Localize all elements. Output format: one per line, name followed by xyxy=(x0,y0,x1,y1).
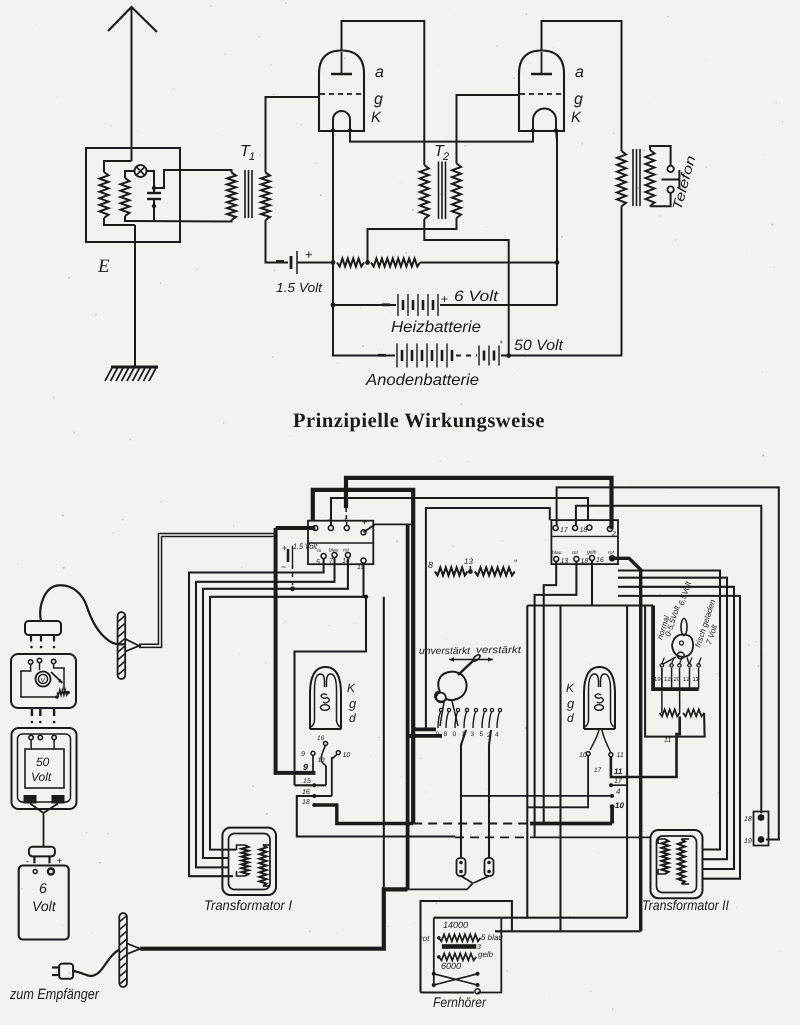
svg-text:19: 19 xyxy=(654,676,661,683)
svg-text:Transformator I: Transformator I xyxy=(204,897,292,913)
svg-text:gelb: gelb xyxy=(587,550,597,556)
svg-text:+: + xyxy=(441,292,448,306)
svg-text:16: 16 xyxy=(596,557,604,564)
svg-text:g: g xyxy=(349,696,357,711)
svg-text:4: 4 xyxy=(495,732,499,739)
svg-text:Fernhörer: Fernhörer xyxy=(433,994,487,1010)
svg-text:18: 18 xyxy=(744,816,752,823)
svg-text:K: K xyxy=(566,681,575,695)
svg-text:15: 15 xyxy=(303,778,311,785)
svg-text:': ' xyxy=(500,338,502,352)
svg-text:rot: rot xyxy=(572,550,578,556)
svg-text:8: 8 xyxy=(444,731,448,738)
svg-text:13: 13 xyxy=(464,557,473,566)
svg-text:50: 50 xyxy=(36,755,50,769)
svg-text:Anodenbatterie: Anodenbatterie xyxy=(365,372,479,389)
svg-text:E: E xyxy=(97,256,110,277)
svg-text:9: 9 xyxy=(301,751,305,758)
svg-text:d: d xyxy=(567,711,574,725)
svg-text:1.5 Volt: 1.5 Volt xyxy=(276,280,323,295)
svg-text:K: K xyxy=(347,681,356,695)
svg-text:11: 11 xyxy=(614,767,623,776)
svg-text:ro: ro xyxy=(317,548,322,554)
svg-text:10: 10 xyxy=(343,752,351,759)
svg-text:d: d xyxy=(349,711,356,725)
svg-text:14000: 14000 xyxy=(443,920,468,930)
svg-text:5: 5 xyxy=(316,559,320,566)
svg-text:K: K xyxy=(371,109,382,126)
svg-text:1.5 Volt: 1.5 Volt xyxy=(293,542,318,551)
svg-text:g: g xyxy=(567,696,575,711)
svg-text:Prinzipielle Wirkungsweise: Prinzipielle Wirkungsweise xyxy=(293,410,545,432)
svg-text:8: 8 xyxy=(428,560,433,570)
svg-text:rot: rot xyxy=(420,934,430,943)
svg-text:10: 10 xyxy=(579,752,587,759)
svg-text:gelb: gelb xyxy=(478,950,494,959)
svg-text:11: 11 xyxy=(664,737,671,744)
svg-text:10: 10 xyxy=(615,801,624,810)
svg-text:11: 11 xyxy=(617,752,624,759)
svg-text:2: 2 xyxy=(442,151,449,163)
svg-text:13: 13 xyxy=(561,558,569,565)
svg-text:+: + xyxy=(282,543,287,553)
svg-text:18: 18 xyxy=(581,558,589,565)
svg-text:'': '' xyxy=(514,558,518,568)
svg-text:blau: blau xyxy=(329,548,339,554)
svg-text:50 Volt: 50 Volt xyxy=(514,337,564,354)
svg-text:V: V xyxy=(41,678,46,685)
svg-text:19: 19 xyxy=(744,838,752,845)
svg-text:Volt: Volt xyxy=(32,898,57,914)
svg-text:18: 18 xyxy=(580,527,588,534)
svg-text:verstärkt: verstärkt xyxy=(476,645,522,656)
svg-text:13: 13 xyxy=(318,757,326,764)
svg-text:18: 18 xyxy=(302,799,310,806)
svg-text:+: + xyxy=(362,517,367,527)
svg-text:17: 17 xyxy=(594,767,602,774)
svg-text:16: 16 xyxy=(302,789,310,796)
svg-text:12: 12 xyxy=(683,676,690,683)
svg-text:17: 17 xyxy=(614,778,623,785)
svg-text:16: 16 xyxy=(317,735,325,742)
svg-text:6000: 6000 xyxy=(441,961,461,971)
svg-text:5 blau: 5 blau xyxy=(481,933,503,942)
svg-text:3: 3 xyxy=(471,731,475,738)
svg-text:a: a xyxy=(575,64,584,81)
svg-text:g: g xyxy=(574,91,583,108)
svg-text:a: a xyxy=(375,64,384,81)
svg-text:−: − xyxy=(281,562,286,572)
svg-text:17: 17 xyxy=(560,527,569,534)
svg-text:9: 9 xyxy=(303,762,308,772)
svg-text:5: 5 xyxy=(480,731,484,738)
svg-text:0: 0 xyxy=(453,731,457,738)
svg-text:9: 9 xyxy=(436,731,440,738)
svg-text:rot: rot xyxy=(608,550,614,556)
svg-text:Transformator II: Transformator II xyxy=(642,897,729,913)
svg-text:Heizbatterie: Heizbatterie xyxy=(391,319,481,336)
svg-text:4: 4 xyxy=(616,787,621,796)
svg-text:+: + xyxy=(305,247,313,262)
svg-text:1: 1 xyxy=(249,151,255,163)
svg-text:zum Empfänger: zum Empfänger xyxy=(9,986,100,1003)
svg-text:g: g xyxy=(374,91,383,108)
svg-text:blau: blau xyxy=(552,550,562,556)
svg-text:6: 6 xyxy=(39,880,47,896)
svg-text:rot: rot xyxy=(343,548,349,554)
svg-text:Volt: Volt xyxy=(31,770,52,784)
svg-text:unverstärkt: unverstärkt xyxy=(419,646,471,657)
svg-text:K: K xyxy=(571,109,582,126)
svg-text:12: 12 xyxy=(664,676,671,683)
svg-text:6 Volt: 6 Volt xyxy=(454,288,499,305)
